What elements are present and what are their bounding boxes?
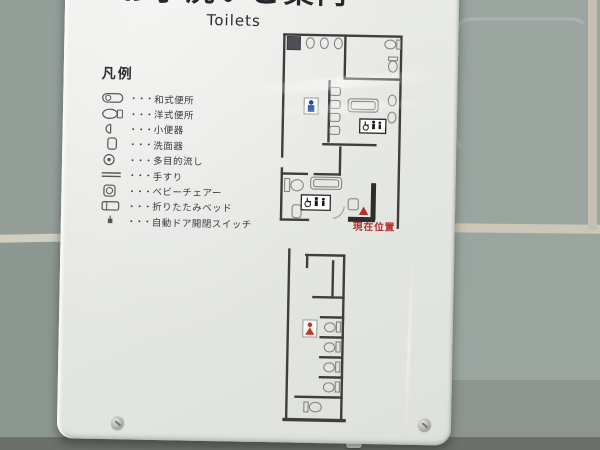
screw [111,416,124,429]
multipurpose-sink [287,37,300,50]
tile-highlight [455,18,589,152]
urinal [320,38,328,49]
western-toilet-icon [101,107,127,120]
toilet [324,322,340,332]
legend-dots: ・・・ [128,153,152,166]
door-swing [333,206,344,218]
person-icon [322,198,325,206]
urinal [334,38,342,49]
auto-door-switch-icon [99,214,125,227]
fixture-box [348,199,358,210]
sign-panel: お手洗いご案内 Toilets 凡例 ・・・ 和式便所 ・・・ 洋式便所 ・・・… [57,0,460,446]
baby-chair-icon [99,183,125,196]
screw [418,418,431,431]
legend-label: 自動ドア開閉スイッチ [152,215,252,231]
female-pictogram [303,320,317,337]
washbasin [292,205,301,218]
handrail-icon [100,168,126,181]
person-icon [315,197,318,206]
legend-dots: ・・・ [127,184,151,197]
toilet [284,178,303,191]
legend-dots: ・・・ [129,92,153,105]
legend-label: ベビーチェアー [152,184,222,199]
legend-label: 多目的流し [153,153,203,168]
legend-label: 和式便所 [154,92,194,107]
current-location-label: 現在位置 [353,220,396,234]
legend-dots: ・・・ [128,138,152,151]
legend-dots: ・・・ [127,215,151,228]
accessible-sign [360,119,386,133]
toilet [388,57,397,72]
accessible-sign [301,195,330,211]
stall-door [330,126,340,134]
urinal [306,38,314,49]
legend-dots: ・・・ [127,199,151,212]
washbasin [388,112,396,123]
legend-dots: ・・・ [129,122,153,135]
toilet-guide-sign-photo: お手洗いご案内 Toilets 凡例 ・・・ 和式便所 ・・・ 洋式便所 ・・・… [0,0,600,450]
washbasin-icon [100,137,126,150]
toilet [324,342,340,352]
folding-bed-icon [99,199,125,212]
legend-dots: ・・・ [129,107,153,120]
current-location-arrow-icon [359,206,369,215]
person-icon [372,121,375,130]
legend-label: 手すり [153,169,183,184]
toilet [324,362,340,372]
legend-label: 折りたたみベッド [152,199,232,215]
legend-label: 洗面器 [153,138,183,153]
squat-toilet-icon [101,91,127,104]
toilet [385,40,401,49]
toilet [323,382,339,392]
tile-grout-line [446,223,600,234]
tile-grout-line [588,0,597,230]
legend-label: 洋式便所 [154,107,194,122]
person-icon [378,121,381,129]
legend-label: 小便器 [154,122,184,137]
stall-door [330,113,340,121]
multipurpose-sink-icon [100,153,126,166]
urinal-icon [101,122,127,135]
legend-dots: ・・・ [128,169,152,182]
folding-bed [311,177,342,190]
toilet [304,402,322,412]
